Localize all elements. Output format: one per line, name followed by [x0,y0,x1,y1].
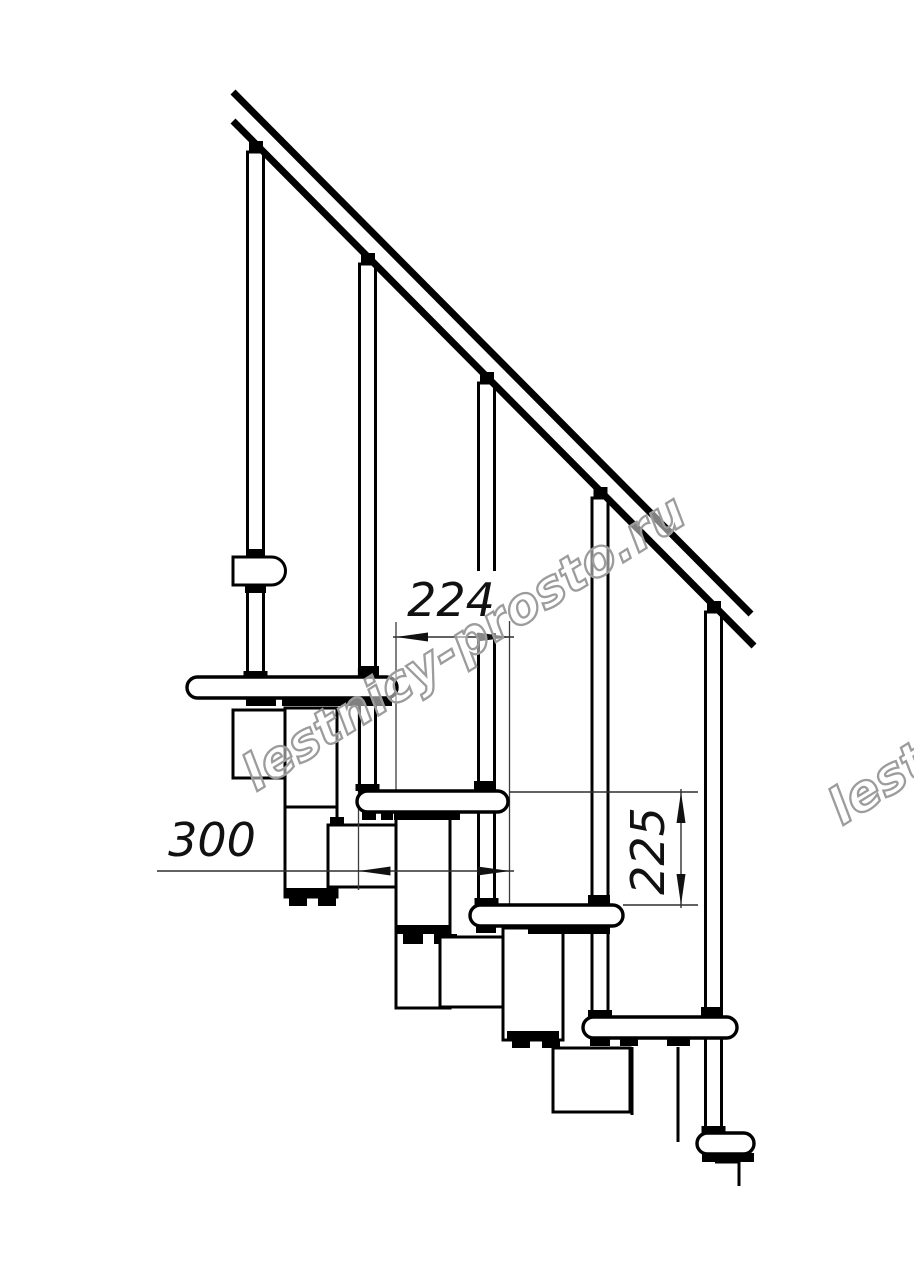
baluster-1-lower-collar [245,585,266,593]
tread-3-band [528,925,610,934]
watermark-text: lestnicy-prosto.ru [232,482,697,802]
arrow-up-icon [677,792,686,823]
module-a3 [503,928,563,1040]
arrow-down-icon [677,874,686,905]
module-a1-tab-r [318,897,336,906]
tread-3 [470,905,623,926]
baluster-5-crossing-collar [701,1007,723,1017]
baluster-2-foot [356,784,380,791]
module-a1-tab-l [289,897,307,906]
tread-4-tab-r [667,1037,690,1046]
landing-tread-stub [233,549,286,593]
module-a3-band [507,1031,559,1040]
module-a2-tab-l [403,934,423,944]
baluster-1-shaft [248,152,264,677]
module-a2-band [396,925,450,934]
dimension-tread-length-value: 300 [168,813,256,867]
baluster-5-foot [702,1126,726,1133]
baluster-3-crossing-collar [474,781,496,791]
module-a1-band [285,888,337,897]
tread-2 [357,791,508,812]
tread-2-band [394,811,460,820]
landing-tread-capsule [233,557,286,585]
tread-3-clamp [476,925,496,933]
staircase-side-view-drawing: 224 300 225 lestnicy-prosto.ru lestnicy-… [0,0,914,1280]
staircase-technical-drawing-page: 224 300 225 lestnicy-prosto.ru lestnicy-… [0,0,914,1280]
baluster-3-foot [475,898,499,905]
module-a3-tab-l [512,1040,530,1048]
tread-4-clamp [590,1038,610,1046]
module-step5-profile [715,1162,739,1186]
module-b3 [553,1048,630,1112]
dimension-riser-value: 225 [621,807,675,895]
tread-1-clamp [246,697,276,706]
baluster-4-foot [588,1010,612,1017]
baluster-1 [248,141,264,677]
tread-4-tab-l [620,1037,638,1046]
tread-5-band [702,1153,754,1162]
tread-2-tab-l [362,811,376,820]
tread-2-tab-r [381,811,393,820]
tread-4 [583,1017,737,1038]
tread-5 [697,1133,754,1154]
baluster-5-shaft [706,612,722,1133]
baluster-4-crossing-collar [588,895,610,905]
baluster-1-foot [244,671,268,678]
watermark-text-fragment: lestnicy-prosto.ru [818,516,914,836]
module-b1 [328,825,404,887]
baluster-5 [706,601,722,1133]
